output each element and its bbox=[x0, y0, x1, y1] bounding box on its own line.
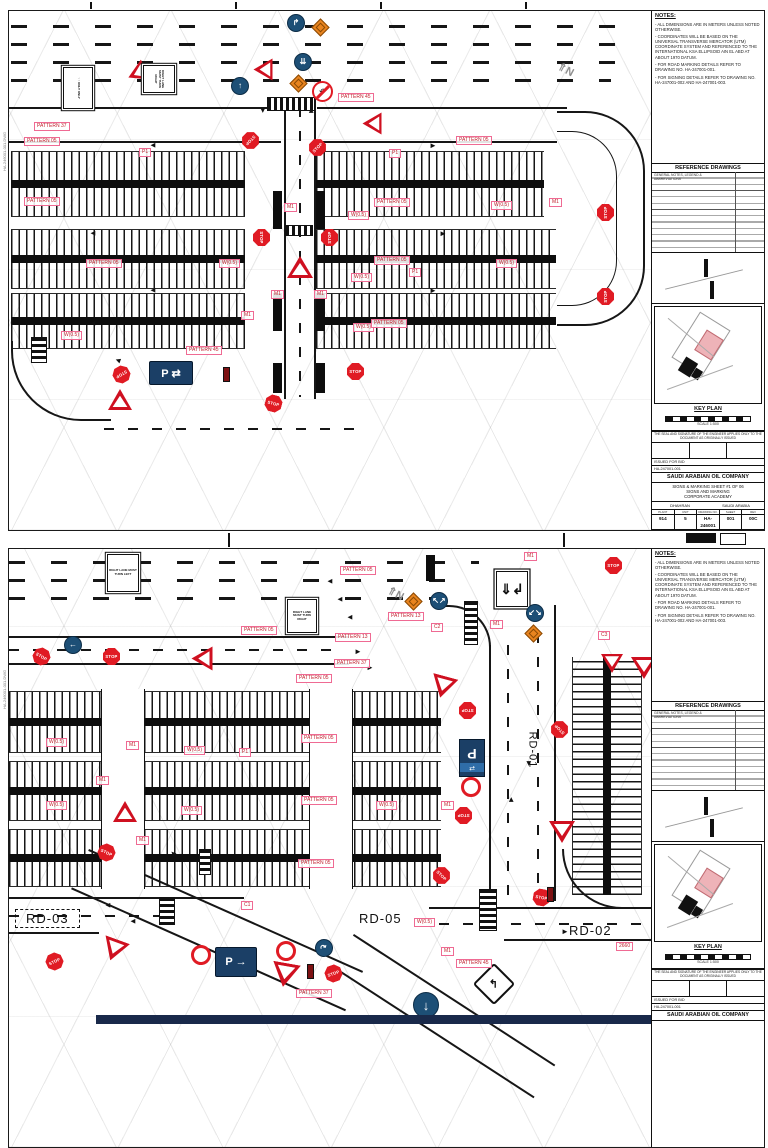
regulatory-text-sign: RIGHT LANE MUST TURN RIGHT bbox=[287, 599, 317, 633]
pattern-label: M1 bbox=[490, 620, 503, 629]
lane-arrow-marking: ► bbox=[336, 595, 344, 604]
lane-arrow-marking: ► bbox=[429, 286, 437, 295]
pattern-label: PATTERN 05 bbox=[241, 626, 277, 635]
regulatory-text-sign: ↑ ↑ ONLY ONLY bbox=[63, 67, 93, 109]
pattern-label: PATTERN 05 bbox=[86, 259, 122, 268]
number-row: 9145HA-24600100100C bbox=[652, 515, 764, 530]
tb-note: FOR SIGNING DETAILS REFER TO DRAWING NO.… bbox=[655, 613, 761, 623]
lane-arrow-marking: ► bbox=[429, 141, 437, 150]
warning-triangle-sign bbox=[428, 673, 459, 701]
approval-block: THE SEAL AND SIGNATURE OF THE ENGINEER A… bbox=[652, 969, 764, 1147]
tb-note: FOR ROAD MARKING DETAILS REFER TO DRAWIN… bbox=[655, 62, 761, 72]
pattern-label: M1 bbox=[271, 290, 284, 299]
key-plan-map bbox=[654, 844, 762, 942]
drawing-titles: SIGNS & MARKING SHEET #1 OF 06 SIGNS AND… bbox=[652, 483, 764, 502]
border-tick bbox=[563, 533, 565, 540]
marker-post bbox=[223, 367, 230, 382]
border-tick bbox=[563, 540, 565, 547]
stop-sign: STOP bbox=[459, 702, 476, 719]
pattern-label: W(0.5) bbox=[376, 801, 397, 810]
drawing-sheet-1: HA-246001-001.DWG bbox=[8, 10, 765, 531]
key-bar bbox=[704, 259, 708, 277]
numcell: 001 bbox=[720, 515, 743, 529]
crosswalk bbox=[285, 225, 313, 236]
warning-triangle-sign bbox=[601, 654, 623, 673]
signature-row bbox=[652, 981, 764, 997]
notes-title: NOTES: bbox=[655, 13, 761, 19]
pattern-label: W(0.5) bbox=[46, 801, 67, 810]
drawing-title-3: CORPORATE ACADEMY bbox=[652, 494, 764, 499]
numcell: 5 bbox=[675, 515, 698, 529]
regulatory-text-sign: RIGHT LANE MUST TURN LEFT bbox=[107, 554, 139, 592]
pattern-label: PATTERN 37 bbox=[34, 122, 70, 131]
pattern-label: P1 bbox=[409, 268, 421, 277]
curve-warning-sign: ↰ bbox=[473, 963, 515, 1005]
pattern-label: M1 bbox=[96, 776, 109, 785]
warning-triangle-sign bbox=[98, 935, 130, 965]
notes-list: ALL DIMENSIONS ARE IN METERS UNLESS NOTE… bbox=[655, 560, 761, 624]
key-diagram bbox=[652, 253, 764, 304]
stop-sign: STOP bbox=[30, 645, 53, 668]
stop-sign: STOP bbox=[605, 557, 622, 574]
company-name: SAUDI ARABIAN OIL COMPANY bbox=[652, 473, 764, 483]
lane-arrow-marking: ► bbox=[439, 229, 447, 238]
numlbl: UNIT bbox=[675, 510, 698, 514]
pattern-label: M1 bbox=[549, 198, 562, 207]
pattern-label: W(0.5) bbox=[496, 259, 517, 268]
tb-note: COORDINATES WILL BE BASED ON THE UNIVERS… bbox=[655, 572, 761, 597]
key-plan-label: KEY PLAN bbox=[652, 406, 764, 414]
pattern-label: 2660 bbox=[616, 942, 633, 951]
stop-sign: STOP bbox=[347, 363, 364, 380]
pattern-label: W(0.5) bbox=[61, 331, 82, 340]
north-arrow: ⇑N bbox=[557, 63, 574, 76]
pattern-label: PATTERN 05 bbox=[374, 256, 410, 265]
reference-drawings: REFERENCE DRAWINGS GENERAL NOTES, LEGEND… bbox=[652, 164, 764, 253]
lane-arrow-marking: ► bbox=[149, 286, 157, 295]
border-tick bbox=[228, 533, 230, 540]
pattern-label: M1 bbox=[241, 311, 254, 320]
stop-sign: STOP bbox=[547, 717, 571, 741]
pattern-label: PATTERN 05 bbox=[374, 198, 410, 207]
key-bar bbox=[704, 797, 708, 815]
pattern-label: PATTERN 05 bbox=[24, 197, 60, 206]
pattern-label: W(0.5) bbox=[184, 746, 205, 755]
sheet-footer-box bbox=[720, 533, 746, 545]
marker-post bbox=[547, 887, 554, 902]
lane-arrow-marking: ► bbox=[479, 319, 487, 328]
pattern-label: PATTERN 45 bbox=[338, 93, 374, 102]
numlbl: PLANT bbox=[652, 510, 675, 514]
numlbl: SHEET bbox=[720, 510, 743, 514]
mandatory-arrow-sign: ↙↘ bbox=[526, 604, 544, 622]
pattern-label: PATTERN 05 bbox=[301, 734, 337, 743]
median-island bbox=[273, 293, 282, 331]
median-island bbox=[316, 363, 325, 393]
issue-row: ISSUED FOR BID bbox=[652, 459, 764, 466]
company-name: SAUDI ARABIAN OIL COMPANY bbox=[652, 1011, 764, 1021]
location-row: DHAHRAN SAUDI ARABIA bbox=[652, 502, 764, 510]
median-island bbox=[273, 191, 282, 229]
pattern-label: W(0.5) bbox=[46, 738, 67, 747]
crosswalk bbox=[479, 889, 497, 931]
numcell: 914 bbox=[652, 515, 675, 529]
margin-filename: HA-246001-001.DWG bbox=[2, 670, 7, 709]
pattern-label: M1 bbox=[524, 552, 537, 561]
parking-sign: ⇄P bbox=[459, 739, 485, 777]
stop-sign: STOP bbox=[263, 393, 284, 414]
key-plan-label: KEY PLAN bbox=[652, 944, 764, 952]
stop-sign: STOP bbox=[103, 648, 120, 665]
key-diagram bbox=[652, 791, 764, 842]
north-arrow: ⇑N bbox=[387, 587, 404, 600]
pattern-label: PATTERN 37 bbox=[334, 659, 370, 668]
issue-row: ISSUED FOR BID bbox=[652, 997, 764, 1004]
pattern-label: C3 bbox=[598, 631, 610, 640]
pattern-label: W(0.5) bbox=[181, 806, 202, 815]
pattern-label: M1 bbox=[441, 947, 454, 956]
hazard-diamond-sign bbox=[404, 592, 422, 610]
pattern-label: M1 bbox=[136, 836, 149, 845]
scale-caption: SCALE 1:500 bbox=[652, 422, 764, 426]
stop-sign: STOP bbox=[455, 807, 472, 824]
pattern-label: M1 bbox=[126, 741, 139, 750]
mandatory-arrow-sign: ← bbox=[64, 636, 82, 654]
numlbl: REV bbox=[742, 510, 764, 514]
lane-arrow-marking: ► bbox=[326, 577, 334, 586]
lane-arrow-marking: ► bbox=[506, 796, 515, 804]
mandatory-arrow-sign: ⇊ bbox=[294, 53, 312, 71]
marker-post bbox=[307, 964, 314, 979]
scale-bar: SCALE 1:500 bbox=[652, 952, 764, 969]
certification-note: THE SEAL AND SIGNATURE OF THE ENGINEER A… bbox=[652, 970, 764, 981]
speed-limit-30-sign bbox=[461, 777, 481, 797]
tb-note: COORDINATES WILL BE BASED ON THE UNIVERS… bbox=[655, 34, 761, 59]
road-label: RD-01 bbox=[526, 732, 538, 769]
warning-triangle-sign bbox=[108, 389, 132, 410]
reference-row: GENERAL NOTES, LEGEND & ABBREVIATIONS bbox=[654, 173, 729, 181]
pattern-label: M1 bbox=[314, 290, 327, 299]
approval-block: THE SEAL AND SIGNATURE OF THE ENGINEER A… bbox=[652, 431, 764, 530]
median-island bbox=[426, 555, 435, 581]
key-bar bbox=[710, 281, 714, 299]
mandatory-arrow-sign: ↖↗ bbox=[430, 592, 448, 610]
pattern-label: PATTERN 05 bbox=[371, 319, 407, 328]
crosswalk bbox=[199, 849, 211, 875]
footer-bar bbox=[96, 1015, 652, 1024]
tb-note: FOR SIGNING DETAILS REFER TO DRAWING NO.… bbox=[655, 75, 761, 85]
pattern-label: PATTERN 45 bbox=[456, 959, 492, 968]
warning-triangle-sign bbox=[287, 256, 313, 278]
reference-row: GENERAL NOTES, LEGEND & ABBREVIATIONS bbox=[654, 711, 729, 719]
job-number: HA-247001-001 bbox=[652, 1004, 764, 1011]
lane-arrow-marking: ► bbox=[89, 229, 97, 238]
notes-list: ALL DIMENSIONS ARE IN METERS UNLESS NOTE… bbox=[655, 22, 761, 86]
tb-note: ALL DIMENSIONS ARE IN METERS UNLESS NOTE… bbox=[655, 560, 761, 570]
pattern-label: PATTERN 37 bbox=[296, 989, 332, 998]
numcell: HA-246001 bbox=[697, 515, 720, 529]
road-label: RD-03 bbox=[15, 909, 80, 928]
title-block-1: NOTES: ALL DIMENSIONS ARE IN METERS UNLE… bbox=[651, 11, 764, 530]
location-country: SAUDI ARABIA bbox=[708, 502, 764, 509]
pattern-label: P1 bbox=[139, 148, 151, 157]
certification-note: THE SEAL AND SIGNATURE OF THE ENGINEER A… bbox=[652, 432, 764, 443]
pattern-label: W(0.5) bbox=[414, 918, 435, 927]
scale-caption: SCALE 1:500 bbox=[652, 960, 764, 964]
pattern-label: P1 bbox=[389, 149, 401, 158]
crosswalk bbox=[159, 897, 175, 925]
parking-sign: P → bbox=[215, 947, 257, 977]
pattern-label: PATTERN 13 bbox=[335, 633, 371, 642]
hazard-diamond-sign bbox=[311, 18, 329, 36]
pattern-label: W(0.5) bbox=[351, 273, 372, 282]
stop-sign: STOP bbox=[321, 229, 338, 246]
stop-sign: STOP bbox=[305, 135, 329, 159]
merge-arrow-sign: ⇓↲ bbox=[496, 571, 528, 607]
warning-triangle-sign bbox=[549, 821, 575, 843]
reference-drawings: REFERENCE DRAWINGS GENERAL NOTES, LEGEND… bbox=[652, 702, 764, 791]
pattern-label: PATTERN 05 bbox=[298, 859, 334, 868]
road-label: RD-02 bbox=[569, 923, 612, 938]
pattern-label: M1 bbox=[441, 801, 454, 810]
median-island bbox=[316, 191, 325, 229]
pattern-label: W(0.5) bbox=[348, 211, 369, 220]
parking-sign: P ⇄ bbox=[149, 361, 193, 385]
crosswalk bbox=[31, 337, 47, 363]
numlbl: DRAWING NO. bbox=[697, 510, 720, 514]
lane-arrow-marking: ► bbox=[346, 613, 354, 622]
lane-arrow-marking: ► bbox=[89, 319, 97, 328]
signature-row bbox=[652, 443, 764, 459]
reference-table bbox=[652, 172, 764, 252]
hazard-diamond-sign bbox=[524, 624, 542, 642]
no-left-turn-sign: ↶ bbox=[312, 81, 333, 102]
notes-section: NOTES: ALL DIMENSIONS ARE IN METERS UNLE… bbox=[652, 11, 764, 164]
pattern-label: PATTERN 13 bbox=[388, 612, 424, 621]
stop-sign: STOP bbox=[110, 363, 133, 386]
stop-sign: STOP bbox=[238, 128, 262, 152]
pattern-label: PATTERN 45 bbox=[186, 346, 222, 355]
pattern-label: C2 bbox=[431, 623, 443, 632]
job-number: HA-247001-001 bbox=[652, 466, 764, 473]
pattern-label: PATTERN 05 bbox=[301, 796, 337, 805]
median-island bbox=[316, 293, 325, 331]
mandatory-arrow-sign: ↱ bbox=[287, 14, 305, 32]
border-tick bbox=[90, 2, 92, 9]
notes-section: NOTES: ALL DIMENSIONS ARE IN METERS UNLE… bbox=[652, 549, 764, 702]
lane-arrow-marking: ► bbox=[258, 107, 267, 115]
title-block-2: NOTES: ALL DIMENSIONS ARE IN METERS UNLE… bbox=[651, 549, 764, 1147]
location-city: DHAHRAN bbox=[652, 502, 708, 509]
mandatory-arrow-sign: ↑ bbox=[231, 77, 249, 95]
pattern-label: PATTERN 05 bbox=[24, 137, 60, 146]
tb-note: ALL DIMENSIONS ARE IN METERS UNLESS NOTE… bbox=[655, 22, 761, 32]
pattern-label: PATTERN 05 bbox=[456, 136, 492, 145]
pattern-label: PATTERN 05 bbox=[296, 674, 332, 683]
lane-arrow-marking: ► bbox=[113, 355, 124, 366]
stop-sign: STOP bbox=[43, 950, 66, 973]
pattern-label: W(0.5) bbox=[491, 201, 512, 210]
crosswalk bbox=[464, 601, 478, 645]
tb-note: FOR ROAD MARKING DETAILS REFER TO DRAWIN… bbox=[655, 600, 761, 610]
scale-bar: SCALE 1:500 bbox=[652, 414, 764, 431]
sheet-footer-stamp bbox=[686, 533, 716, 543]
stop-sign: STOP bbox=[253, 229, 270, 246]
key-bar bbox=[710, 819, 714, 837]
border-tick bbox=[380, 2, 382, 9]
lane-arrow-marking: ► bbox=[306, 107, 315, 115]
regulatory-text-sign: RIGHT LANE MUST TURN RIGHT bbox=[143, 65, 175, 93]
lane-arrow-marking: ► bbox=[561, 927, 569, 936]
border-tick bbox=[228, 540, 230, 547]
border-tick bbox=[525, 2, 527, 9]
notes-title: NOTES: bbox=[655, 551, 761, 557]
pattern-label: C1 bbox=[241, 901, 253, 910]
margin-filename: HA-246001-001.DWG bbox=[2, 132, 7, 171]
lane-arrow-marking: ► bbox=[129, 917, 137, 926]
pattern-label: W(0.5) bbox=[219, 259, 240, 268]
numcell: 00C bbox=[742, 515, 764, 529]
drawing-sheet-2: HA-246001-001.DWG bbox=[8, 548, 765, 1148]
stop-sign: STOP bbox=[429, 863, 453, 887]
pattern-label: M1 bbox=[284, 203, 297, 212]
pattern-label: PATTERN 05 bbox=[340, 566, 376, 575]
lane-arrow-marking: ► bbox=[354, 647, 362, 656]
warning-triangle-sign bbox=[254, 59, 273, 81]
reference-table bbox=[652, 710, 764, 790]
key-plan-map bbox=[654, 306, 762, 404]
hazard-diamond-sign bbox=[289, 74, 307, 92]
border-tick bbox=[235, 2, 237, 9]
warning-triangle-sign bbox=[363, 113, 382, 135]
road-label: RD-05 bbox=[359, 911, 402, 926]
lane-arrow-marking: ► bbox=[167, 848, 179, 860]
warning-triangle-sign bbox=[192, 647, 213, 671]
median-island bbox=[273, 363, 282, 393]
pattern-label: P1 bbox=[239, 748, 251, 757]
lane-arrow-marking: ► bbox=[104, 901, 112, 910]
